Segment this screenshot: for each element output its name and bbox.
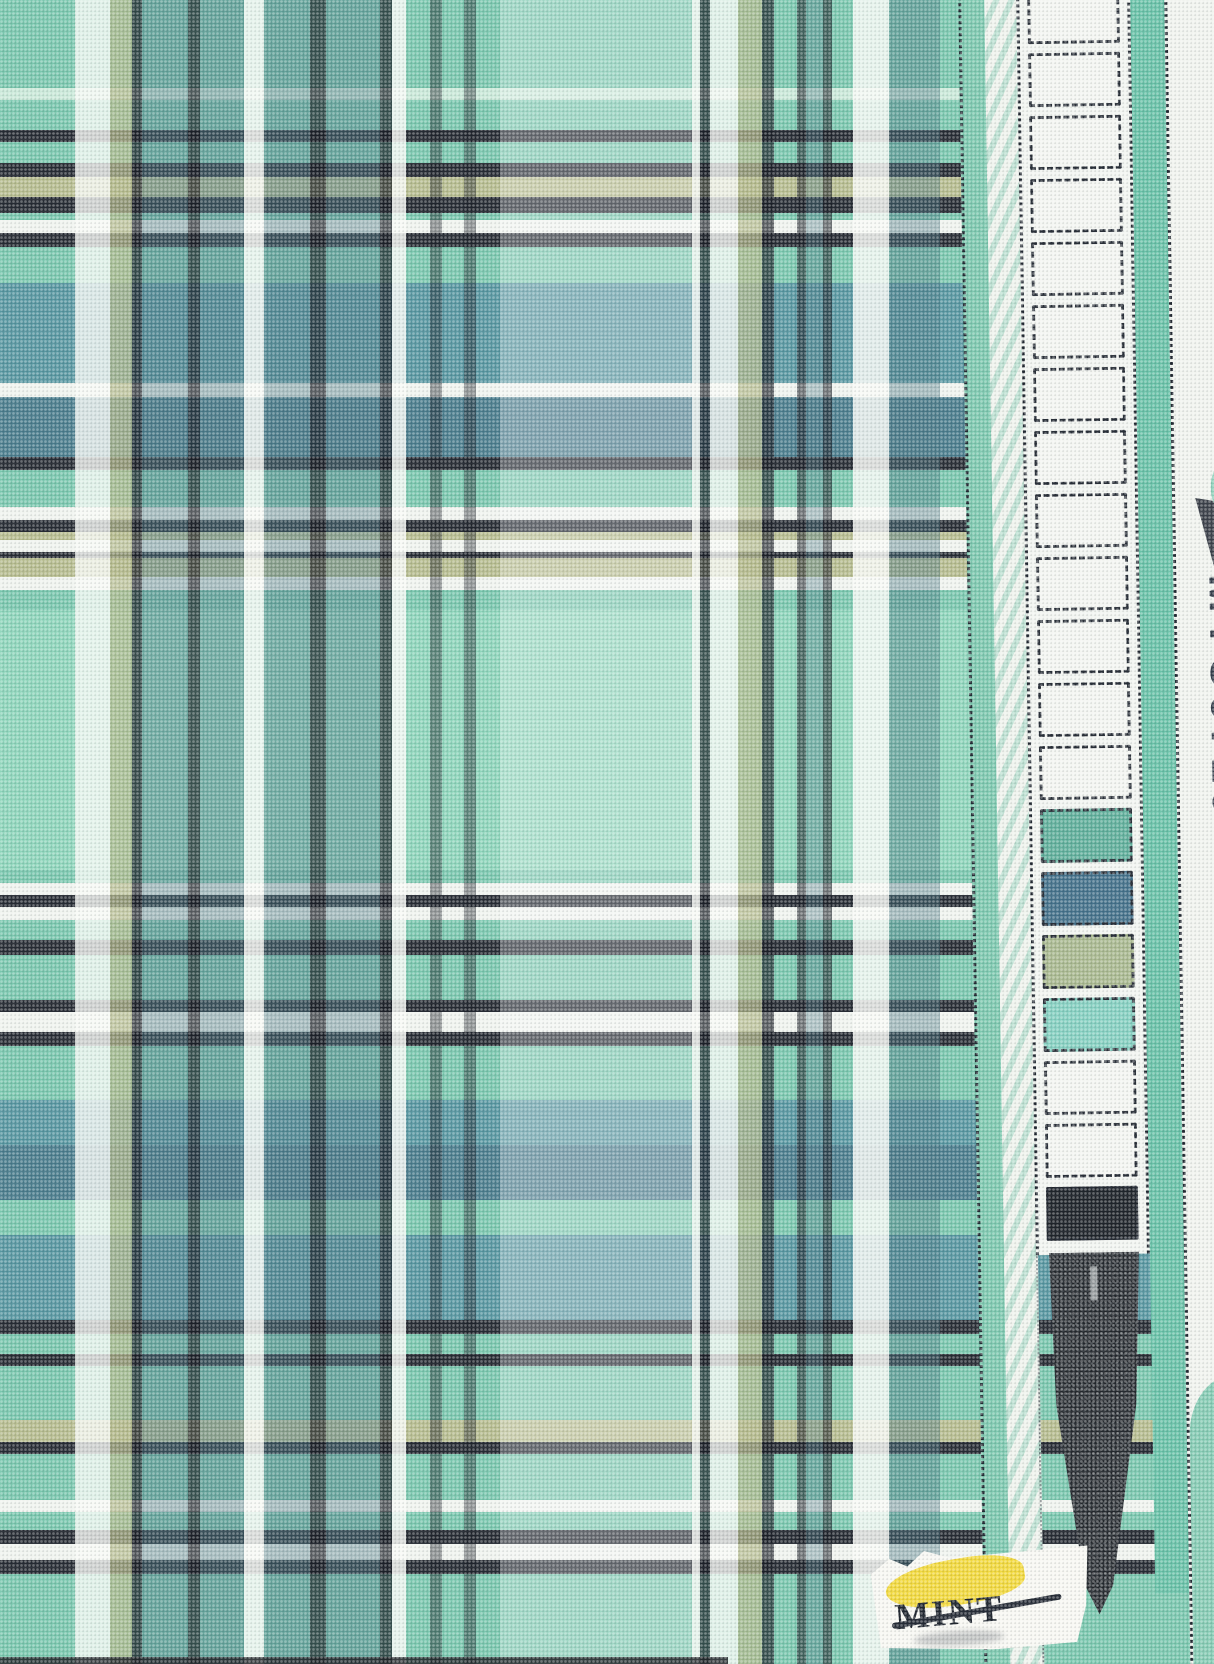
registration-box [1040,808,1133,863]
registration-box [1030,178,1123,233]
registration-box [1033,367,1126,422]
registration-box [1045,1123,1138,1178]
registration-box [1041,871,1134,926]
registration-box [1038,682,1131,737]
registration-box [1036,556,1129,611]
registration-box [1032,304,1125,359]
registration-box [1039,745,1132,800]
registration-box [1034,430,1127,485]
registration-box [1027,0,1120,44]
registration-box [1028,52,1121,107]
fabric-swatch-scan: MYC6710 MINT [0,0,1214,1664]
fabric-show-through-patch [1189,1373,1214,1664]
registration-box [1031,241,1124,296]
registration-box [1029,115,1122,170]
registration-box [1035,493,1128,548]
tip-mark [1090,1266,1098,1300]
registration-box [1043,997,1136,1052]
registration-box [1044,1060,1137,1115]
triangle-down-icon [1185,498,1214,573]
registration-strip [1016,0,1150,1255]
registration-box [1037,619,1130,674]
registration-box [1046,1186,1139,1241]
selvedge-strip: MYC6710 [958,0,1214,1664]
registration-box [1042,934,1135,989]
selvedge-code-text: MYC6710 [1198,574,1214,821]
scan-edge-shadow [0,1657,728,1664]
